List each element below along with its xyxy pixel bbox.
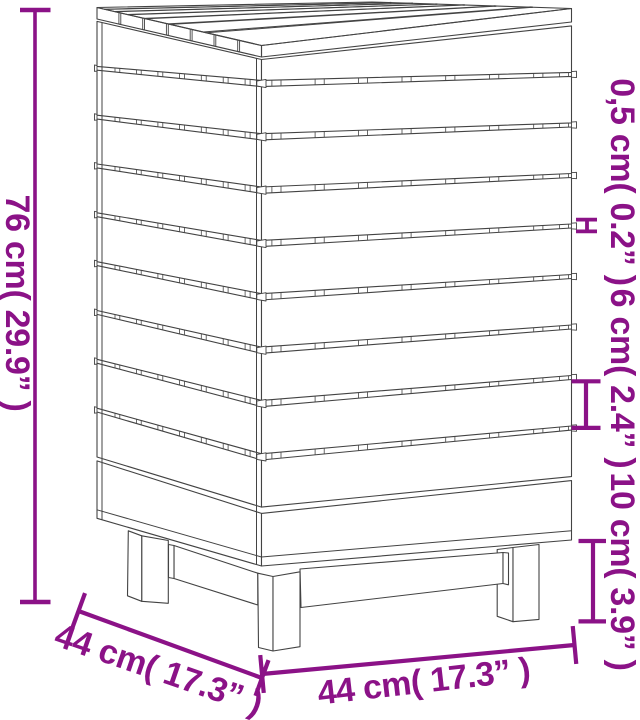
svg-text:76 cm( 29.9” ): 76 cm( 29.9” ) xyxy=(0,195,36,412)
svg-text:10 cm( 3.9” ): 10 cm( 3.9” ) xyxy=(603,472,640,670)
svg-text:6 cm( 2.4” ): 6 cm( 2.4” ) xyxy=(603,289,640,469)
svg-text:0,5 cm( 0.2” ): 0,5 cm( 0.2” ) xyxy=(603,78,640,285)
